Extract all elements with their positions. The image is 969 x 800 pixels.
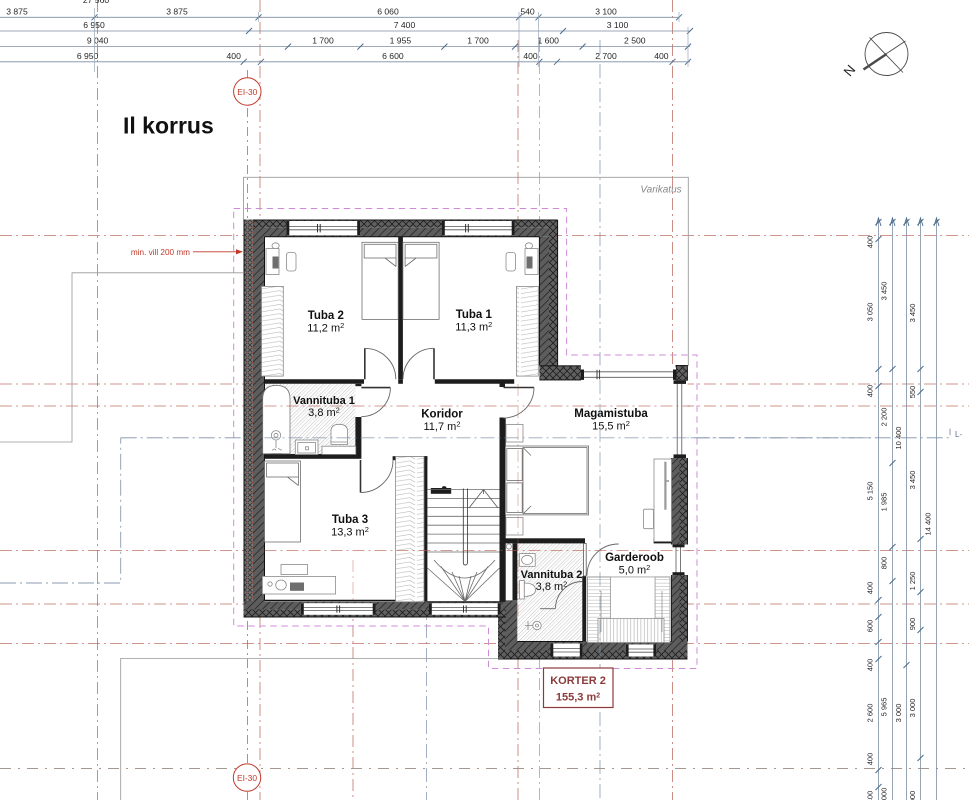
svg-text:3 000: 3 000 [908,699,917,718]
svg-text:400: 400 [866,753,875,766]
svg-text:Tuba 1: Tuba 1 [456,309,493,321]
svg-text:400: 400 [866,659,875,672]
svg-text:3 100: 3 100 [607,20,629,30]
svg-text:Tuba 3: Tuba 3 [332,514,368,526]
svg-text:2 200: 2 200 [880,408,889,427]
svg-text:6 060: 6 060 [377,6,399,16]
svg-text:27 560: 27 560 [83,0,110,5]
svg-text:3 450: 3 450 [880,282,889,301]
svg-text:Vannituba 2: Vannituba 2 [521,569,583,581]
svg-text:400: 400 [523,51,538,61]
svg-text:L-: L- [955,430,962,439]
svg-text:Magamistuba: Magamistuba [574,408,648,420]
svg-text:5,0 m2: 5,0 m2 [619,563,651,577]
svg-text:3 000: 3 000 [880,788,889,800]
svg-text:3 875: 3 875 [166,6,188,16]
svg-text:1 250: 1 250 [908,572,917,591]
svg-text:1 955: 1 955 [390,36,412,46]
svg-text:3,8 m2: 3,8 m2 [308,406,340,420]
svg-text:400: 400 [866,385,875,398]
svg-text:400: 400 [866,791,875,800]
svg-text:5 150: 5 150 [866,482,875,501]
svg-text:1 700: 1 700 [312,36,334,46]
svg-text:10 400: 10 400 [894,427,903,450]
svg-text:Varikatus: Varikatus [640,185,681,196]
svg-text:11,7 m2: 11,7 m2 [424,420,461,434]
svg-text:2 600: 2 600 [866,704,875,723]
svg-text:13,3 m2: 13,3 m2 [331,525,369,539]
svg-text:3,8 m2: 3,8 m2 [536,580,568,594]
svg-text:400: 400 [866,582,875,595]
svg-text:400: 400 [866,236,875,249]
svg-text:5 965: 5 965 [880,698,889,717]
svg-text:3 450: 3 450 [908,471,917,490]
svg-text:1 700: 1 700 [467,36,489,46]
svg-text:550: 550 [908,386,917,399]
svg-text:800: 800 [880,557,889,570]
svg-text:400: 400 [654,51,669,61]
svg-text:EI-30: EI-30 [237,773,257,783]
svg-text:6 950: 6 950 [77,51,99,61]
svg-text:EI-30: EI-30 [237,87,257,97]
svg-text:3 450: 3 450 [908,304,917,323]
svg-text:2 700: 2 700 [595,51,617,61]
svg-text:400: 400 [227,51,242,61]
svg-text:11,3 m2: 11,3 m2 [455,320,492,334]
svg-text:600: 600 [866,620,875,633]
svg-text:900: 900 [908,618,917,631]
svg-text:6 950: 6 950 [83,20,105,30]
svg-text:3 875: 3 875 [6,6,28,16]
svg-text:2 500: 2 500 [624,36,646,46]
svg-text:155,3 m2: 155,3 m2 [556,692,600,704]
svg-text:Tuba 2: Tuba 2 [308,310,344,322]
svg-text:Garderoob: Garderoob [605,552,664,564]
svg-text:7 400: 7 400 [394,20,416,30]
svg-text:1 600: 1 600 [537,36,559,46]
svg-text:3 100: 3 100 [595,6,617,16]
svg-text:540: 540 [520,6,535,16]
svg-text:14 400: 14 400 [924,513,933,536]
svg-text:15,5 m2: 15,5 m2 [592,419,630,433]
svg-text:1 985: 1 985 [880,493,889,512]
svg-text:000: 000 [908,791,917,800]
svg-text:Il korrus: Il korrus [123,113,214,139]
svg-text:11,2 m2: 11,2 m2 [307,321,344,335]
svg-text:min. vill 200 mm: min. vill 200 mm [131,248,190,257]
svg-text:3 000: 3 000 [894,704,903,723]
svg-text:6 600: 6 600 [382,51,404,61]
svg-text:9 040: 9 040 [87,36,109,46]
svg-text:KORTER 2: KORTER 2 [550,675,606,687]
svg-text:3 050: 3 050 [866,303,875,322]
svg-text:Vannituba 1: Vannituba 1 [293,395,355,407]
